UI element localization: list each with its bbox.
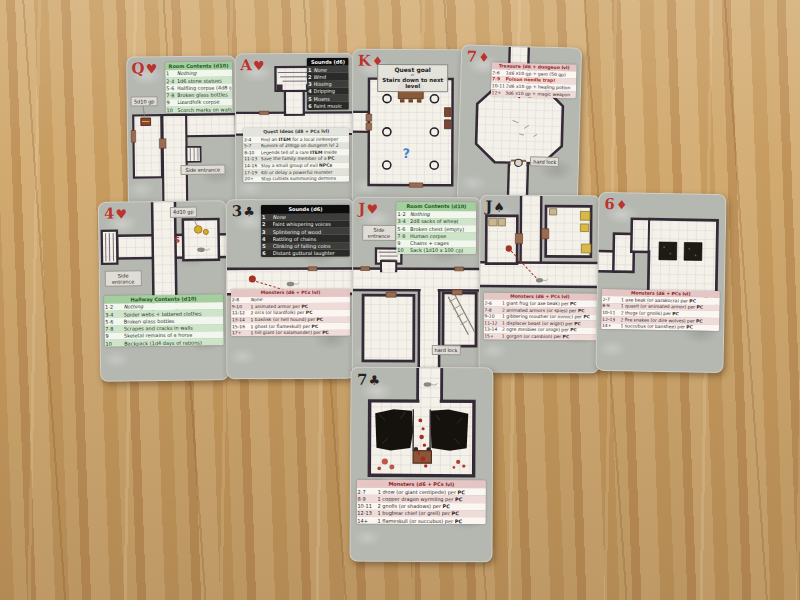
table-row: 4Dripping xyxy=(307,88,349,95)
stairs-icon xyxy=(102,231,118,264)
door-icon xyxy=(366,114,372,121)
card-rank: 3 ♣ xyxy=(232,205,255,220)
heart-suit-icon: ♥ xyxy=(146,62,158,75)
rank-letter: 7 xyxy=(357,372,368,387)
room-contents-table: Room Contents (d10)1-2Nothing3-42d8 sack… xyxy=(396,202,476,254)
rank-letter: K xyxy=(358,54,371,69)
table-row: 3Hissing xyxy=(307,80,349,87)
door-icon xyxy=(542,229,549,239)
table-row: 2-4Find an ITEM for a local innkeeper xyxy=(243,136,350,143)
card-six-diamonds: 6 ♦ Monsters (d6 + PCs lvl)2-71 axe beak… xyxy=(595,192,726,373)
rank-letter: J xyxy=(485,200,492,215)
table-row: 1None xyxy=(261,213,350,221)
rank-letter: A xyxy=(240,58,252,73)
club-suit-icon: ♣ xyxy=(368,374,380,387)
card-jack-spades: J ♠ Monsters (d6 + PCs lvl)2-61 giant fr… xyxy=(478,195,600,374)
dungeon-map-seven-clubs xyxy=(350,368,492,562)
rank-letter: Q xyxy=(131,61,144,76)
hard-lock-label: hard lock xyxy=(530,157,559,168)
table-row: 1-2Nothing xyxy=(396,211,476,219)
door-icon xyxy=(159,139,166,149)
side-entrance-label: Side entrance xyxy=(180,164,225,175)
secret-door-marker: S xyxy=(174,236,180,245)
club-suit-icon: ♣ xyxy=(243,206,255,219)
table-row: 1None xyxy=(307,66,349,73)
table-row: 7-8Human corpse xyxy=(396,232,476,240)
table-row: 5-6Halfling corpse (4d8 gp) xyxy=(165,84,232,92)
card-king-diamonds: K ♦ Quest goal or Stairs down to next le… xyxy=(352,49,468,206)
side-entrance-label: Side entrance xyxy=(105,270,142,287)
card-three-clubs: 3 ♣ Sounds (d6)1None2Faint whispering vo… xyxy=(226,199,356,379)
table-row: 7-8Broken glass bottles xyxy=(165,91,232,99)
card-rank: A ♥ xyxy=(240,58,264,73)
door-icon xyxy=(366,123,372,130)
door-icon xyxy=(452,290,462,295)
card-rank: 4 ♥ xyxy=(104,207,127,222)
table-row: 14-16Slay a small group of evil NPCs xyxy=(243,162,350,169)
heart-suit-icon: ♥ xyxy=(253,59,265,72)
lock-icon xyxy=(515,159,523,166)
card-rank: J ♥ xyxy=(358,202,378,217)
table-row: 2-41d6 stone statues xyxy=(165,76,232,84)
skull-icon xyxy=(249,275,256,282)
table-row: 17+1 hill giant (or salamander) per PC xyxy=(231,330,350,337)
monsters-table: Monsters (d6 + PCs lvl)2-71 axe beak (or… xyxy=(601,289,720,332)
door-icon xyxy=(259,111,268,114)
table-row: 12-131 bugbear chief (or grell) per PC xyxy=(356,510,486,518)
card-rank: 7 ♦ xyxy=(466,49,490,65)
table-row: 2Faint whispering voices xyxy=(261,221,350,229)
rank-letter: 3 xyxy=(232,205,242,220)
quest-goal-box: Quest goal or Stairs down to next level xyxy=(377,64,449,92)
card-seven-clubs: 7 ♣ Monsters (d6 + PCs lvl)2-71 drow (or… xyxy=(349,367,493,563)
gold-label: 5d10 gp xyxy=(131,96,158,107)
table-header: Sounds (d6) xyxy=(307,58,349,66)
card-ace-hearts: A ♥ Sounds (d6)1None2Wind3Hissing4Drippi… xyxy=(235,53,355,208)
diamond-suit-icon: ♦ xyxy=(478,51,490,64)
table-row: 10Sack (1d10 x 100 cp) xyxy=(396,247,476,255)
card-rank: J ♠ xyxy=(485,200,505,215)
table-row: 2Wind xyxy=(307,73,349,80)
diamond-suit-icon: ♦ xyxy=(616,199,628,212)
table-row: 1Nothing xyxy=(165,69,232,77)
table-row: 10Scorch marks on walls xyxy=(165,105,232,113)
card-jack-hearts: J ♥ Side entrance Room Contents (d10)1-2… xyxy=(352,197,482,376)
table-row: 2-71 drow (or giant centipede) per PC xyxy=(356,488,486,496)
table-row: 8-10Legends tell of a rare ITEM inside xyxy=(243,149,350,156)
dungeon-map-four-hearts xyxy=(99,201,228,381)
table-row: 11-13Save the family member of a PC xyxy=(243,156,350,163)
table-row: 6Distant guttural laughter xyxy=(261,250,350,258)
skull-icon xyxy=(506,245,512,252)
table-row: 15-161 ghost (or flameskull) per PC xyxy=(231,323,350,330)
gold-label: 4d10 gp xyxy=(170,207,197,218)
corridor-junction xyxy=(164,116,185,135)
stairs-icon xyxy=(187,147,201,162)
hallway-contents-table: Hallway Contents (d10)1-2Nothing3-4Spide… xyxy=(104,294,224,347)
monsters-table: Monsters (d6 + PCs lvl)2-71 drow (or gia… xyxy=(356,480,486,525)
table-row: 20+Stop cultists summoning demons xyxy=(243,176,350,183)
card-queen-hearts: Q ♥ Room Contents (d10)1Nothing2-41d6 st… xyxy=(126,55,238,208)
treasure-table: Treasure (d6 + dungeon lvl)2-61d6 x10 gp… xyxy=(491,62,578,99)
card-four-hearts: 4 ♥ 4d10 gp S Side entrance Hallway Cont… xyxy=(98,200,230,382)
table-row: 10-112 gnolls (or shadows) per PC xyxy=(356,502,486,510)
monsters-table: Monsters (d6 + PCs lvl)2-8None9-101 anim… xyxy=(231,289,351,337)
table-header: Sounds (d6) xyxy=(261,205,350,214)
dungeon-map-jack-spades xyxy=(479,196,599,373)
door-icon xyxy=(308,267,317,271)
heart-suit-icon: ♥ xyxy=(115,208,127,221)
hard-lock-label: hard lock xyxy=(431,345,460,355)
table-row: 3Splintering of wood xyxy=(261,228,350,236)
table-row: 5Moans xyxy=(307,95,349,102)
card-seven-diamonds: 7 ♦ Treasure (d6 + dungeon lvl)2-61d6 x1… xyxy=(457,44,582,205)
side-entrance-label: Side entrance xyxy=(362,224,396,241)
rank-letter: 4 xyxy=(104,207,115,222)
table-row: 5-6Broken chest (empty) xyxy=(396,225,476,233)
table-row: 13-141 basilisk (or hell hound) per PC xyxy=(231,316,350,323)
dungeon-map-six-diamonds xyxy=(596,193,725,372)
sounds-table: Sounds (d6)1None2Wind3Hissing4Dripping5M… xyxy=(307,58,349,110)
mystery-marker: ? xyxy=(403,146,411,161)
quest-goal-text: Stairs down to next level xyxy=(380,77,446,89)
door-icon xyxy=(455,267,464,271)
chest-icon xyxy=(141,118,151,126)
rank-letter: 6 xyxy=(604,197,615,212)
door-icon xyxy=(131,130,135,142)
door-icon xyxy=(515,234,522,244)
card-rank: Q ♥ xyxy=(131,61,157,76)
room-contents-table: Room Contents (d10)1Nothing2-41d6 stone … xyxy=(165,61,233,114)
quest-ideas-table: Quest Ideas (d8 + PCs lvl)2-4Find an ITE… xyxy=(243,128,350,183)
table-row: 8-91 copper dragon wyrmling per PC xyxy=(356,495,486,503)
door-icon xyxy=(409,183,423,187)
table-row: 15+1 gorgon (or cambion) per PC xyxy=(483,333,596,340)
card-rank: 7 ♣ xyxy=(357,372,380,387)
table-row: 9Lizardfolk corpse xyxy=(165,98,232,106)
card-rank: 6 ♦ xyxy=(604,197,627,212)
table-row: 9Chains + cages xyxy=(396,240,476,248)
table-row: 6Faint music xyxy=(307,102,349,109)
table-row: 11-122 orcs (or lizardfolk) per PC xyxy=(231,310,350,317)
table-row: 9-101 animated armor per PC xyxy=(231,303,350,310)
door-icon xyxy=(361,267,370,271)
rank-letter: J xyxy=(358,202,365,217)
table-header: Room Contents (d10) xyxy=(396,202,476,211)
monsters-table: Monsters (d6 + PCs lvl)2-61 giant frog (… xyxy=(483,292,596,340)
table-row: 4Rattling of chains xyxy=(261,235,350,243)
heart-suit-icon: ♥ xyxy=(366,203,378,216)
table-row: 2-8None xyxy=(231,296,350,303)
table-row: 14+1 flameskull (or succubus) per PC xyxy=(356,517,486,525)
table-row: 5-7Rumors of 200gp on dungeon lvl 2 xyxy=(243,142,350,149)
door-icon xyxy=(386,292,396,297)
table-row: 3-42d8 sacks of wheat xyxy=(396,218,476,226)
table-row: 17-19Kill or delay a powerful monster xyxy=(243,169,350,176)
table-row: 5Clinking of falling coins xyxy=(261,242,350,250)
sounds-table: Sounds (d6)1None2Faint whispering voices… xyxy=(261,205,350,257)
spade-suit-icon: ♠ xyxy=(493,201,505,214)
rank-letter: 7 xyxy=(466,49,477,64)
